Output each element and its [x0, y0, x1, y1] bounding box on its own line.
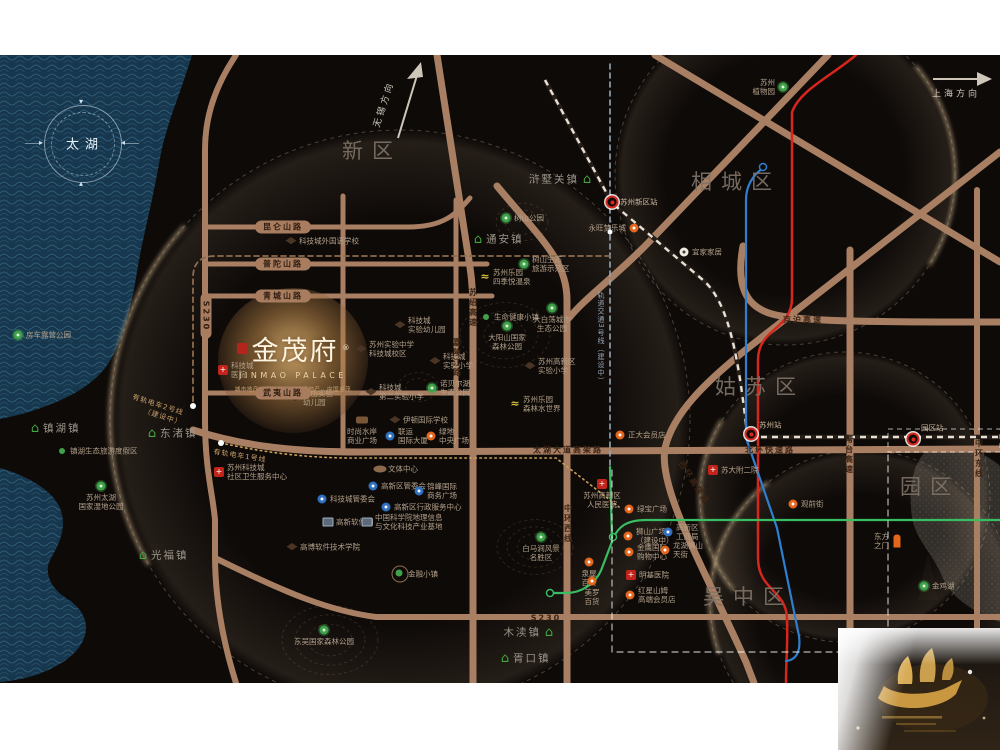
compass-east-icon: ◂	[121, 139, 125, 147]
logo-name: 金茂府	[252, 329, 339, 368]
photo-white-fade	[838, 628, 1000, 750]
compass-north-icon: ▾	[79, 98, 83, 106]
compass-tick-east	[125, 143, 139, 144]
compass-tick-west	[25, 143, 39, 144]
compass-west-icon: ▸	[39, 139, 43, 147]
logo-registered-mark: ®	[343, 344, 350, 352]
logo-tagline: 城市地产 · 科技地产 · 健康地产 · 中国金茂	[235, 385, 351, 393]
location-map: ▾ ▴ ▸ ◂ 太湖 金茂府 ® JINMAO PALACE 城市地产 · 科技…	[0, 0, 1000, 750]
top-white-band	[0, 0, 1000, 55]
compass-south-icon: ▴	[79, 180, 83, 188]
jinmao-palace-logo: 金茂府 ® JINMAO PALACE 城市地产 · 科技地产 · 健康地产 ·…	[218, 288, 368, 433]
logo-name-en: JINMAO PALACE	[239, 371, 347, 380]
map-background	[0, 55, 1000, 683]
lake-tai-label: 太湖	[66, 134, 104, 153]
logo-seal-icon	[237, 343, 248, 354]
ship-photo	[838, 628, 1000, 750]
taihu-compass: ▾ ▴ ▸ ◂ 太湖	[37, 98, 127, 188]
